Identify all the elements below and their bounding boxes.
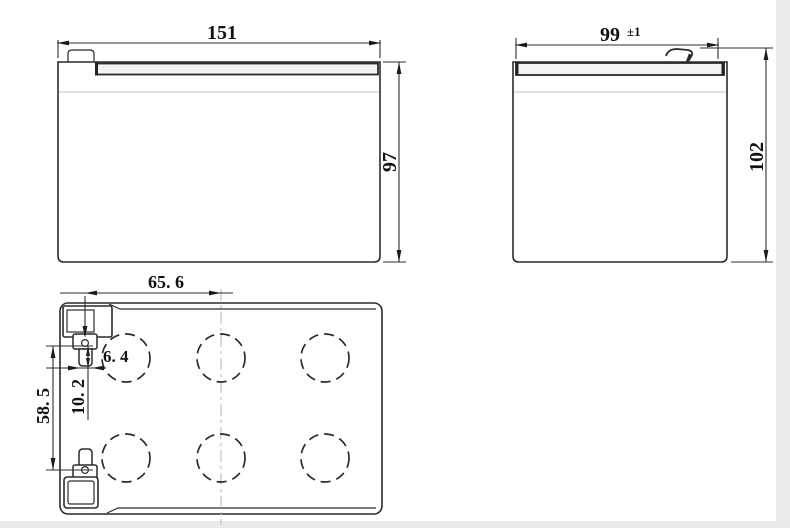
side-lid-band xyxy=(516,63,724,75)
terminal-bottom-blade-stem xyxy=(79,449,92,466)
front-terminal-bump xyxy=(68,50,94,62)
dim-pitch-text: 65. 6 xyxy=(148,272,184,292)
dim-oheight-text: 102 xyxy=(746,142,768,172)
dim-depth-arrow-left xyxy=(515,43,527,48)
front-view: 151 97 xyxy=(57,22,406,262)
dim-oheight-arrow-bottom xyxy=(764,250,769,262)
drawing-canvas: 151 97 99 ±1 102 xyxy=(0,0,790,528)
dim-depth-text: 99 xyxy=(600,24,620,46)
dim-termwidth-text: 6. 4 xyxy=(103,347,129,366)
scan-edge-bottom xyxy=(0,521,790,528)
dim-termspan-arrow-bottom xyxy=(51,458,56,470)
dim-height-arrow-top xyxy=(397,62,402,74)
dim-depth-tolerance-text: ±1 xyxy=(627,24,641,39)
front-lid-band xyxy=(96,64,378,75)
dim-pitch-arrow-left xyxy=(85,291,97,296)
dim-termspan-text: 58. 5 xyxy=(33,388,53,424)
scan-edge-right xyxy=(776,0,790,528)
dim-width-arrow-right xyxy=(369,41,381,46)
dim-width-text: 151 xyxy=(207,22,237,44)
battery-dimension-drawing: 151 97 99 ±1 102 xyxy=(0,0,790,528)
dim-height-text: 97 xyxy=(379,152,401,172)
dim-termoffset-text: 10. 2 xyxy=(68,379,88,415)
side-view: 99 ±1 102 xyxy=(513,24,773,262)
dim-oheight-arrow-top xyxy=(764,48,769,60)
dim-pitch-arrow-right xyxy=(209,291,221,296)
dim-width-arrow-left xyxy=(57,41,69,46)
dim-depth-arrow-right xyxy=(707,43,719,48)
top-view: 65. 6 6. 4 10. 2 58. 5 xyxy=(33,272,382,525)
dim-termspan-arrow-top xyxy=(51,346,56,358)
terminal-top-blade-stem xyxy=(79,349,92,366)
dim-height-arrow-bottom xyxy=(397,250,402,262)
